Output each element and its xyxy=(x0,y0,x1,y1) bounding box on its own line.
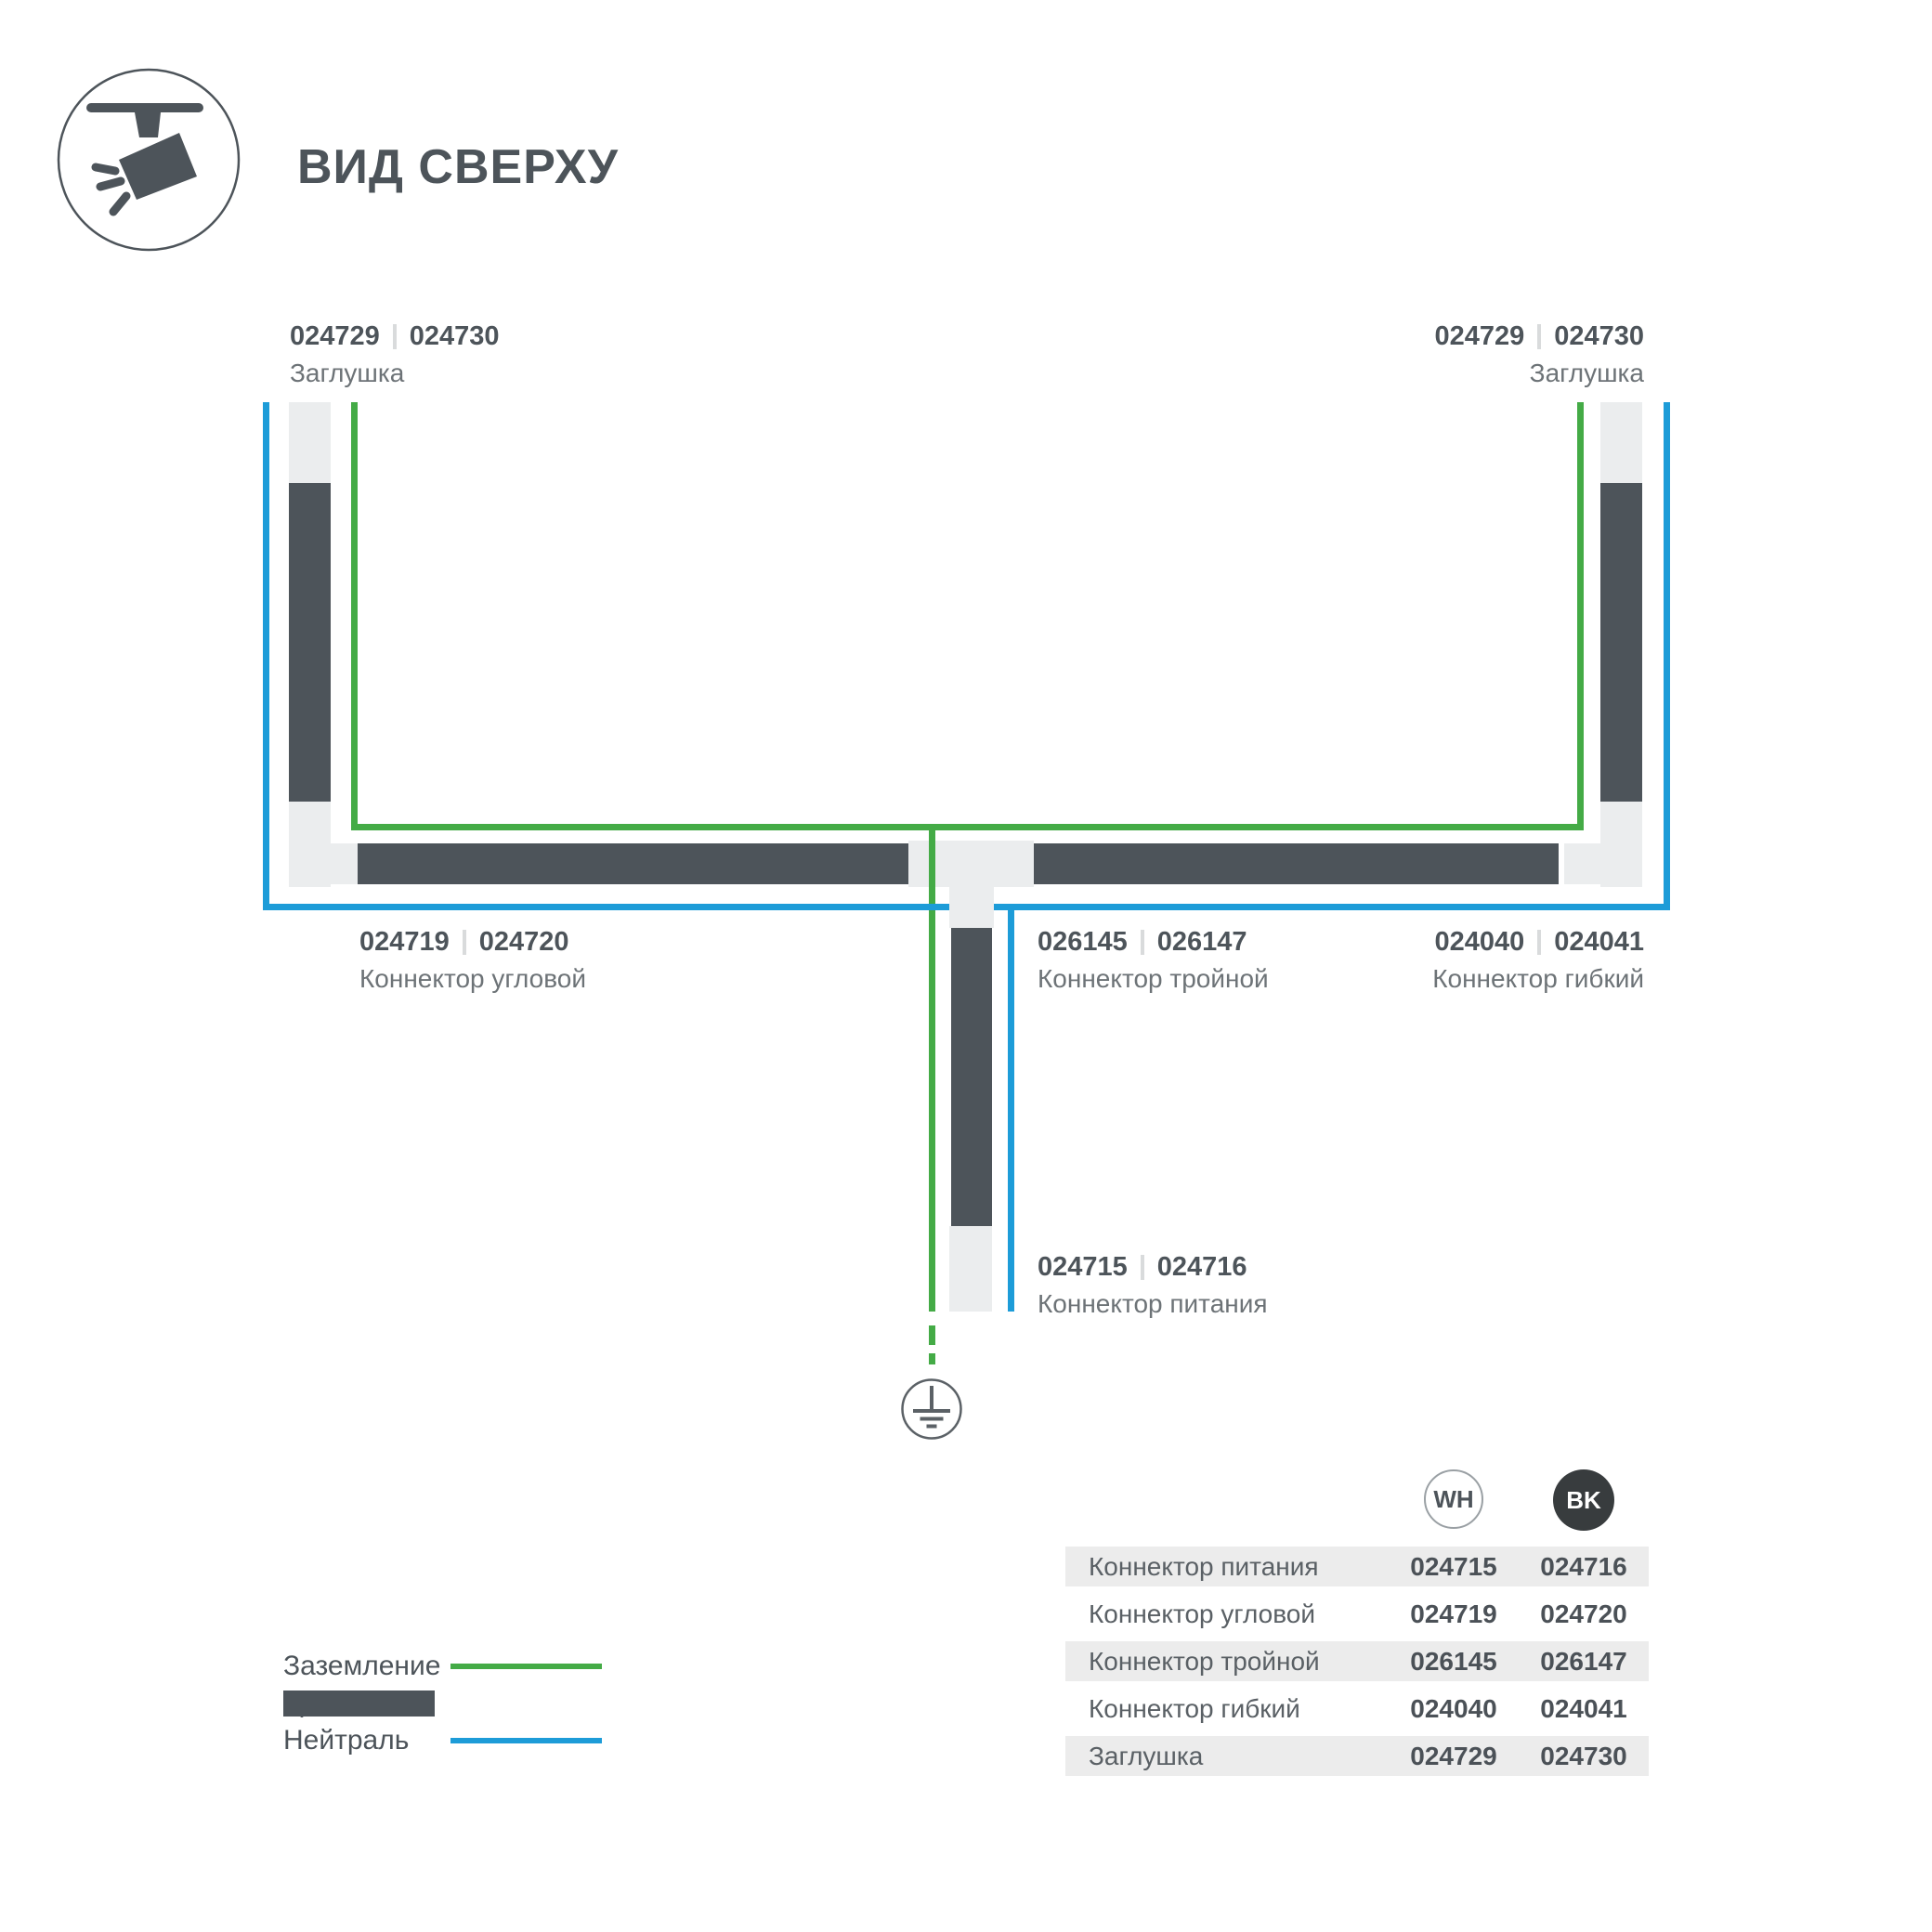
label-triple-caption: Коннектор тройной xyxy=(1038,964,1269,994)
code-wh: 024729 xyxy=(290,321,380,352)
row-wh-code: 026145 xyxy=(1389,1647,1519,1677)
code-wh: 026145 xyxy=(1038,927,1128,958)
code-bk: 026147 xyxy=(1157,927,1247,958)
code-separator xyxy=(1537,930,1541,955)
code-bk: 024720 xyxy=(479,927,569,958)
label-corner-codes: 024719 024720 xyxy=(359,927,586,958)
top-view-icon xyxy=(54,65,249,260)
page: ВИД СВЕРХУ 024729 024730 xyxy=(0,0,1932,1932)
track-bottom-vertical xyxy=(951,928,992,1226)
label-cap-left: 024729 024730 Заглушка xyxy=(290,321,500,388)
corner-connector-left-horizontal xyxy=(289,843,358,884)
legend-item-track: Трек xyxy=(283,1685,602,1722)
color-badge-white: WH xyxy=(1424,1469,1483,1529)
ground-wire-right-vertical xyxy=(1577,402,1584,829)
label-cap-right-caption: Заглушка xyxy=(1530,359,1644,388)
corner-connector-right-horizontal xyxy=(1564,843,1642,884)
end-cap-left xyxy=(289,402,331,483)
t-connector-bar xyxy=(908,841,1034,887)
legend-track-swatch xyxy=(283,1690,435,1717)
table-row: Заглушка 024729 024730 xyxy=(1065,1736,1649,1776)
track-horizontal-left xyxy=(358,843,908,884)
label-corner-connector: 024719 024720 Коннектор угловой xyxy=(359,927,586,994)
row-wh-code: 024040 xyxy=(1389,1694,1519,1724)
article-table-header: WH BK xyxy=(1065,1469,1649,1529)
row-name: Коннектор гибкий xyxy=(1065,1694,1389,1724)
legend-item-neutral: Нейтраль xyxy=(283,1722,602,1759)
label-power-codes: 024715 024716 xyxy=(1038,1252,1268,1283)
code-wh: 024729 xyxy=(1434,321,1524,352)
legend-label: Заземление xyxy=(283,1651,450,1682)
label-cap-left-caption: Заглушка xyxy=(290,359,500,388)
label-power-connector: 024715 024716 Коннектор питания xyxy=(1038,1252,1268,1319)
legend: Заземление Трек Нейтраль xyxy=(283,1648,602,1759)
legend-ground-swatch xyxy=(450,1664,602,1669)
page-title: ВИД СВЕРХУ xyxy=(297,139,619,195)
table-row: Коннектор угловой 024719 024720 xyxy=(1065,1594,1649,1634)
code-bk: 024730 xyxy=(1554,321,1644,352)
code-separator xyxy=(1537,324,1541,349)
article-table: WH BK Коннектор питания 024715 024716 Ко… xyxy=(1065,1469,1649,1783)
row-name: Коннектор тройной xyxy=(1065,1647,1389,1677)
label-corner-caption: Коннектор угловой xyxy=(359,964,586,994)
neutral-wire-right-vertical xyxy=(1664,402,1670,910)
table-row: Коннектор гибкий 024040 024041 xyxy=(1065,1689,1649,1729)
legend-label: Нейтраль xyxy=(283,1725,450,1756)
ground-wire-dash-2 xyxy=(929,1353,935,1364)
row-wh-code: 024715 xyxy=(1389,1552,1519,1582)
row-wh-code: 024719 xyxy=(1389,1599,1519,1629)
ground-wire-horizontal xyxy=(351,824,1584,830)
ground-wire-branch-vertical xyxy=(929,824,935,1312)
power-connector-body xyxy=(949,1226,992,1312)
ground-wire-dash-1 xyxy=(929,1325,935,1345)
legend-item-ground: Заземление xyxy=(283,1648,602,1685)
t-connector-stem xyxy=(949,887,994,928)
label-cap-right-codes: 024729 024730 xyxy=(1434,321,1644,352)
code-separator xyxy=(1141,930,1144,955)
code-bk: 024730 xyxy=(410,321,500,352)
row-bk-code: 024720 xyxy=(1519,1599,1649,1629)
code-separator xyxy=(393,324,397,349)
row-bk-code: 024730 xyxy=(1519,1742,1649,1771)
row-bk-code: 024716 xyxy=(1519,1552,1649,1582)
row-name: Коннектор угловой xyxy=(1065,1599,1389,1629)
code-wh: 024040 xyxy=(1434,927,1524,958)
color-badge-black: BK xyxy=(1553,1469,1614,1531)
end-cap-right xyxy=(1600,402,1642,483)
neutral-wire-left-vertical xyxy=(263,402,269,910)
row-bk-code: 026147 xyxy=(1519,1647,1649,1677)
code-bk: 024041 xyxy=(1554,927,1644,958)
table-row: Коннектор тройной 026145 026147 xyxy=(1065,1641,1649,1681)
row-name: Заглушка xyxy=(1065,1742,1389,1771)
label-triple-connector: 026145 026147 Коннектор тройной xyxy=(1038,927,1269,994)
neutral-wire-branch-vertical xyxy=(1008,904,1014,1312)
code-wh: 024719 xyxy=(359,927,450,958)
neutral-wire-bottom-right xyxy=(994,904,1670,910)
track-left-vertical xyxy=(289,483,331,802)
label-triple-codes: 026145 026147 xyxy=(1038,927,1269,958)
label-cap-right: 024729 024730 Заглушка xyxy=(1434,321,1644,388)
ground-symbol-icon xyxy=(899,1377,964,1442)
label-cap-left-codes: 024729 024730 xyxy=(290,321,500,352)
code-separator xyxy=(463,930,466,955)
ground-wire-left-vertical xyxy=(351,402,358,829)
legend-neutral-swatch xyxy=(450,1738,602,1743)
code-wh: 024715 xyxy=(1038,1252,1128,1283)
row-name: Коннектор питания xyxy=(1065,1552,1389,1582)
label-flexible-codes: 024040 024041 xyxy=(1434,927,1644,958)
row-wh-code: 024729 xyxy=(1389,1742,1519,1771)
label-power-caption: Коннектор питания xyxy=(1038,1289,1268,1319)
label-flexible-caption: Коннектор гибкий xyxy=(1432,964,1644,994)
table-row: Коннектор питания 024715 024716 xyxy=(1065,1547,1649,1586)
track-right-vertical xyxy=(1600,483,1642,802)
article-table-rows: Коннектор питания 024715 024716 Коннекто… xyxy=(1065,1547,1649,1776)
track-horizontal-right xyxy=(1034,843,1559,884)
neutral-wire-bottom-left xyxy=(263,904,949,910)
row-bk-code: 024041 xyxy=(1519,1694,1649,1724)
code-bk: 024716 xyxy=(1157,1252,1247,1283)
code-separator xyxy=(1141,1255,1144,1280)
label-flexible-connector: 024040 024041 Коннектор гибкий xyxy=(1432,927,1644,994)
